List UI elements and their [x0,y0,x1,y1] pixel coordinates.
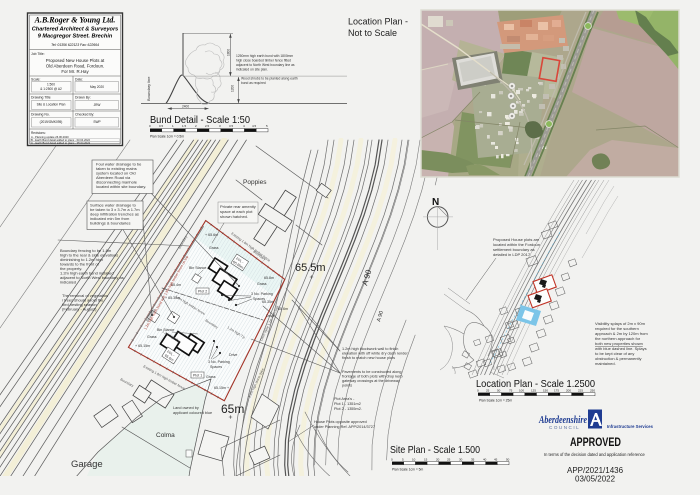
svg-text:indicated on site plan.: indicated on site plan. [236,68,268,72]
svg-text:0.5: 0.5 [159,124,164,128]
svg-text:Land owned by: Land owned by [173,406,199,410]
svg-text:Site & Location Plan: Site & Location Plan [37,103,66,107]
svg-text:2.5: 2.5 [205,124,210,128]
svg-text:1250mm high earth bund with 18: 1250mm high earth bund with 1800mm [236,54,293,58]
svg-text:Old Aberdeen Road, Fordoun.: Old Aberdeen Road, Fordoun. [46,64,105,69]
svg-text:+ 65.15m: + 65.15m [135,344,150,348]
svg-text:175: 175 [554,389,559,393]
svg-text:40: 40 [483,458,487,462]
svg-text:Bund Detail - Scale 1:50: Bund Detail - Scale 1:50 [150,114,250,126]
svg-text:150: 150 [543,389,548,393]
svg-text:gateway crossings at the drive: gateway crossings at the driveway [342,379,400,383]
svg-text:points: points [342,384,352,388]
svg-text:indicated: indicated [60,280,76,285]
svg-text:House Plots opposite approved: House Plots opposite approved [314,420,367,424]
svg-text:maintained.: maintained. [595,361,616,366]
svg-text:In terms of the decision dated: In terms of the decision dated and appli… [544,452,646,457]
svg-text:May 2020: May 2020 [90,85,104,89]
svg-text:C - Earth Bund detail added to: C - Earth Bund detail added to plans - 0… [31,141,91,145]
svg-text:Plot 1: Plot 1 [193,374,202,378]
svg-text:Plan Scale 1cm = 5m: Plan Scale 1cm = 5m [392,468,423,472]
svg-text:3.5: 3.5 [229,124,234,128]
svg-text:200: 200 [566,389,571,393]
svg-text:03/05/2022: 03/05/2022 [575,475,616,484]
svg-text:Grass: Grass [209,246,219,250]
svg-text:1.2m high blockwork wall to fi: 1.2m high blockwork wall to finish [342,347,398,351]
svg-text:(February - August): (February - August) [62,307,97,312]
svg-text:Location Plan -: Location Plan - [348,17,408,27]
svg-text:COUNCIL: COUNCIL [549,425,580,430]
svg-text:Date:: Date: [75,78,83,82]
svg-text:Pavements to be constructed al: Pavements to be constructed along [342,370,402,374]
svg-text:Drawn By:: Drawn By: [75,96,91,100]
svg-text:Drawing No.: Drawing No. [31,113,50,117]
svg-text:Plot 2 - 1355m2.: Plot 2 - 1355m2. [334,407,362,411]
svg-text:225: 225 [578,389,583,393]
svg-text:Grass: Grass [206,375,216,379]
svg-text:25: 25 [447,458,451,462]
svg-text:A.B.Roger & Young Ltd.: A.B.Roger & Young Ltd. [34,16,116,25]
svg-text:finish to match new house plot: finish to match new house plots [342,356,395,360]
svg-text:Plan Scale 1cm = 25m: Plan Scale 1cm = 25m [479,399,512,403]
svg-text:4.5: 4.5 [252,124,257,128]
svg-text:Boundary line: Boundary line [146,76,151,101]
svg-text:For Mr. R.Hay: For Mr. R.Hay [61,69,89,74]
svg-text:Bin Stance: Bin Stance [189,266,206,270]
svg-text:10: 10 [412,458,416,462]
svg-text:250: 250 [590,389,595,393]
svg-text:30: 30 [459,458,463,462]
svg-text:shown hatched.: shown hatched. [220,214,248,219]
svg-text:located within site boundary.: located within site boundary. [96,184,146,189]
svg-text:Spaces: Spaces [210,365,222,369]
svg-text:9 Macgregor Street. Brechin: 9 Macgregor Street. Brechin [38,34,113,40]
svg-text:buildings & boundaries: buildings & boundaries [90,221,130,226]
svg-text:elevation with off white dry d: elevation with off white dry dash render [342,352,409,356]
svg-text:Colma: Colma [156,432,175,439]
svg-text:& 1:2500 @ A2: & 1:2500 @ A2 [40,87,62,91]
svg-text:Drive: Drive [229,353,237,357]
svg-text:Plot Area's -: Plot Area's - [334,397,355,401]
svg-text:(2019/GMK095): (2019/GMK095) [40,120,63,124]
svg-text:1:500: 1:500 [47,83,55,87]
svg-text:adjacent to North West boundar: adjacent to North West boundary line as [236,63,295,67]
svg-text:Infrastructure Services: Infrastructure Services [607,424,653,429]
svg-text:1800: 1800 [226,49,230,56]
svg-text:35: 35 [471,458,475,462]
svg-text:Plot 2: Plot 2 [198,290,207,294]
svg-text:1200: 1200 [231,85,235,92]
svg-text:1.5: 1.5 [182,124,187,128]
svg-text:65.15m +: 65.15m + [214,386,229,390]
svg-text:Grass: Grass [147,335,157,339]
svg-text:Drawing Title: Drawing Title [31,96,51,100]
svg-text:high close boarded timber fenc: high close boarded timber fence fitted [236,59,291,63]
svg-text:Plan Scale 1cm = 0.5m: Plan Scale 1cm = 0.5m [150,135,184,139]
svg-text:45: 45 [494,458,498,462]
svg-text:under Planning Ref. APP/2014/3: under Planning Ref. APP/2014/3727 [314,425,375,429]
svg-text:65.8m: 65.8m [264,276,274,280]
svg-text:Wood shrubs to be planted alon: Wood shrubs to be planted along earth [241,77,298,81]
svg-text:Checked By:: Checked By: [75,113,94,117]
svg-text:65m: 65m [221,402,244,416]
svg-text:frontage of both plots with dr: frontage of both plots with drop kerb [342,375,403,379]
svg-text:Revisions:: Revisions: [31,131,46,135]
svg-text:APPROVED: APPROVED [570,435,621,449]
svg-text:3 No. Parking: 3 No. Parking [208,360,230,364]
svg-text:bund as required: bund as required [241,81,266,85]
svg-text:Scale:: Scale: [31,78,40,82]
svg-text:3 No. Parking: 3 No. Parking [251,292,273,296]
svg-text:50: 50 [506,458,510,462]
svg-text:JRW: JRW [94,103,101,107]
svg-text:Poppies: Poppies [243,179,267,186]
svg-text:Proposed New House Plots at: Proposed New House Plots at [46,58,105,63]
svg-text:Plot 1 - 1351m2: Plot 1 - 1351m2 [334,402,361,406]
svg-text:50: 50 [497,389,501,393]
svg-text:25: 25 [486,389,490,393]
svg-text:125: 125 [531,389,536,393]
svg-text:100: 100 [519,389,524,393]
svg-text:detailed in LDP 2017.: detailed in LDP 2017. [493,252,531,257]
svg-text:65.35m: 65.35m [262,300,274,304]
svg-text:65.5m: 65.5m [295,262,326,274]
svg-text:Chartered Architect & Surveyor: Chartered Architect & Surveyors [32,27,119,33]
svg-text:Grass: Grass [257,282,267,286]
svg-text:Job Title:: Job Title: [31,52,45,56]
svg-text:applicant coloured blue: applicant coloured blue [173,411,212,415]
svg-text:20: 20 [436,458,440,462]
svg-text:15: 15 [424,458,428,462]
svg-text:65.6m: 65.6m [278,307,288,311]
svg-text:Not to Scale: Not to Scale [348,28,397,38]
svg-text:2400: 2400 [182,105,189,109]
svg-text:SWP: SWP [93,120,100,124]
svg-text:Site Plan - Scale 1.500: Site Plan - Scale 1.500 [390,444,480,456]
svg-text:75: 75 [509,389,513,393]
svg-text:Tel: 01356 622123 Fax: 62: Tel: 01356 622123 Fax: 622664 [51,43,99,47]
